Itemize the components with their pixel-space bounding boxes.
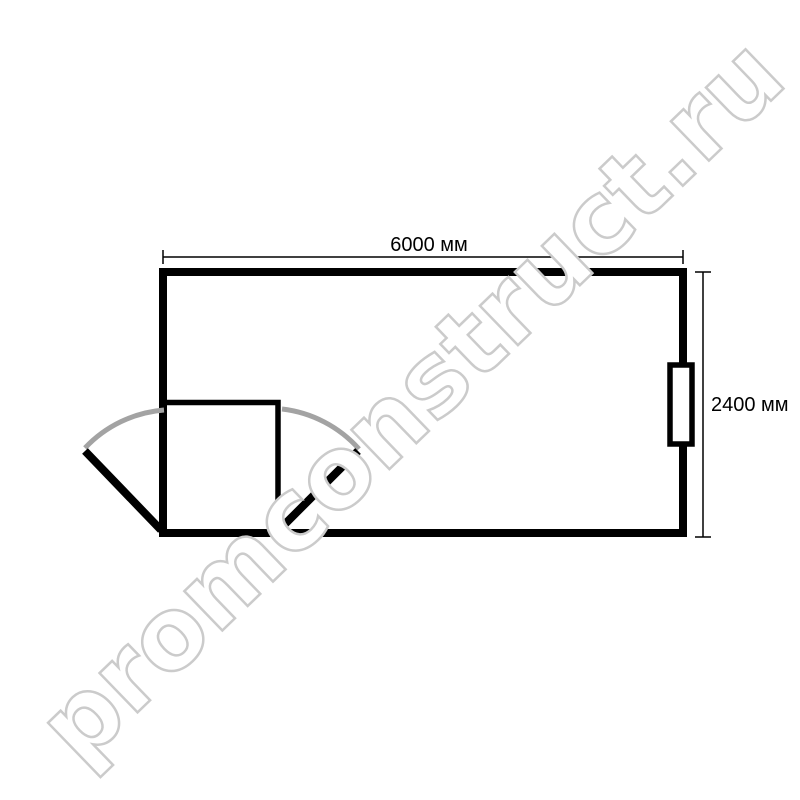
door-leaf-left: [85, 451, 161, 530]
floor-plan-page: 6000 мм 2400 мм promconstruct.ru: [0, 0, 800, 800]
window: [670, 365, 692, 444]
door-swing-arc-left: [85, 410, 164, 448]
width-dimension-label: 6000 мм: [390, 234, 468, 256]
floor-plan-canvas: 6000 мм 2400 мм promconstruct.ru: [0, 0, 800, 800]
height-dimension-label: 2400 мм: [711, 394, 789, 416]
